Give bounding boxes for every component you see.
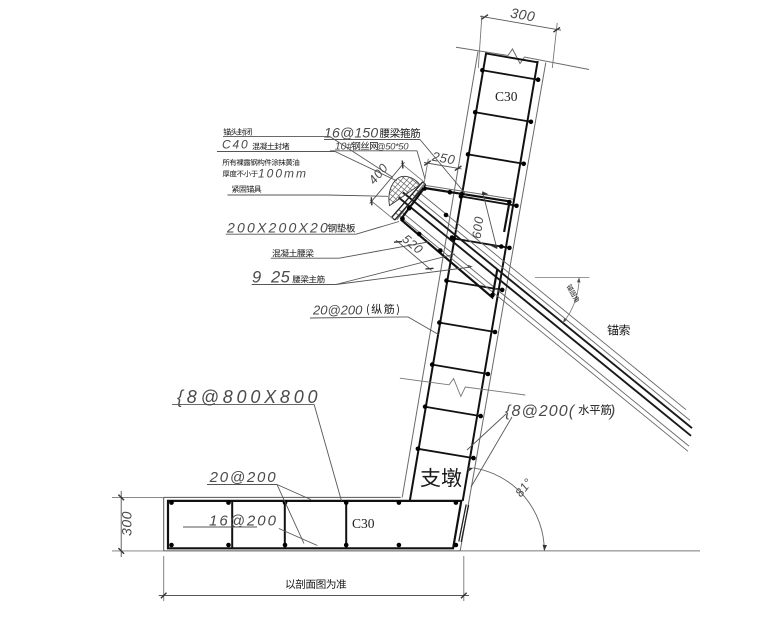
svg-text:16@150: 16@150 (324, 125, 378, 141)
svg-text:): ) (608, 403, 615, 420)
svg-text:600: 600 (470, 216, 487, 240)
svg-text:{8@200(: {8@200( (505, 403, 576, 420)
svg-text:200X200X20: 200X200X20 (226, 219, 330, 235)
svg-text:100mm: 100mm (258, 166, 308, 180)
svg-text:C30: C30 (495, 89, 518, 104)
svg-text:20@200: 20@200 (312, 303, 363, 318)
svg-text:300: 300 (119, 511, 135, 536)
svg-text:20@200: 20@200 (209, 469, 278, 486)
svg-text:9: 9 (252, 269, 261, 287)
svg-text:25: 25 (270, 269, 291, 287)
svg-text:C40: C40 (222, 138, 249, 152)
svg-text:C30: C30 (352, 516, 375, 531)
